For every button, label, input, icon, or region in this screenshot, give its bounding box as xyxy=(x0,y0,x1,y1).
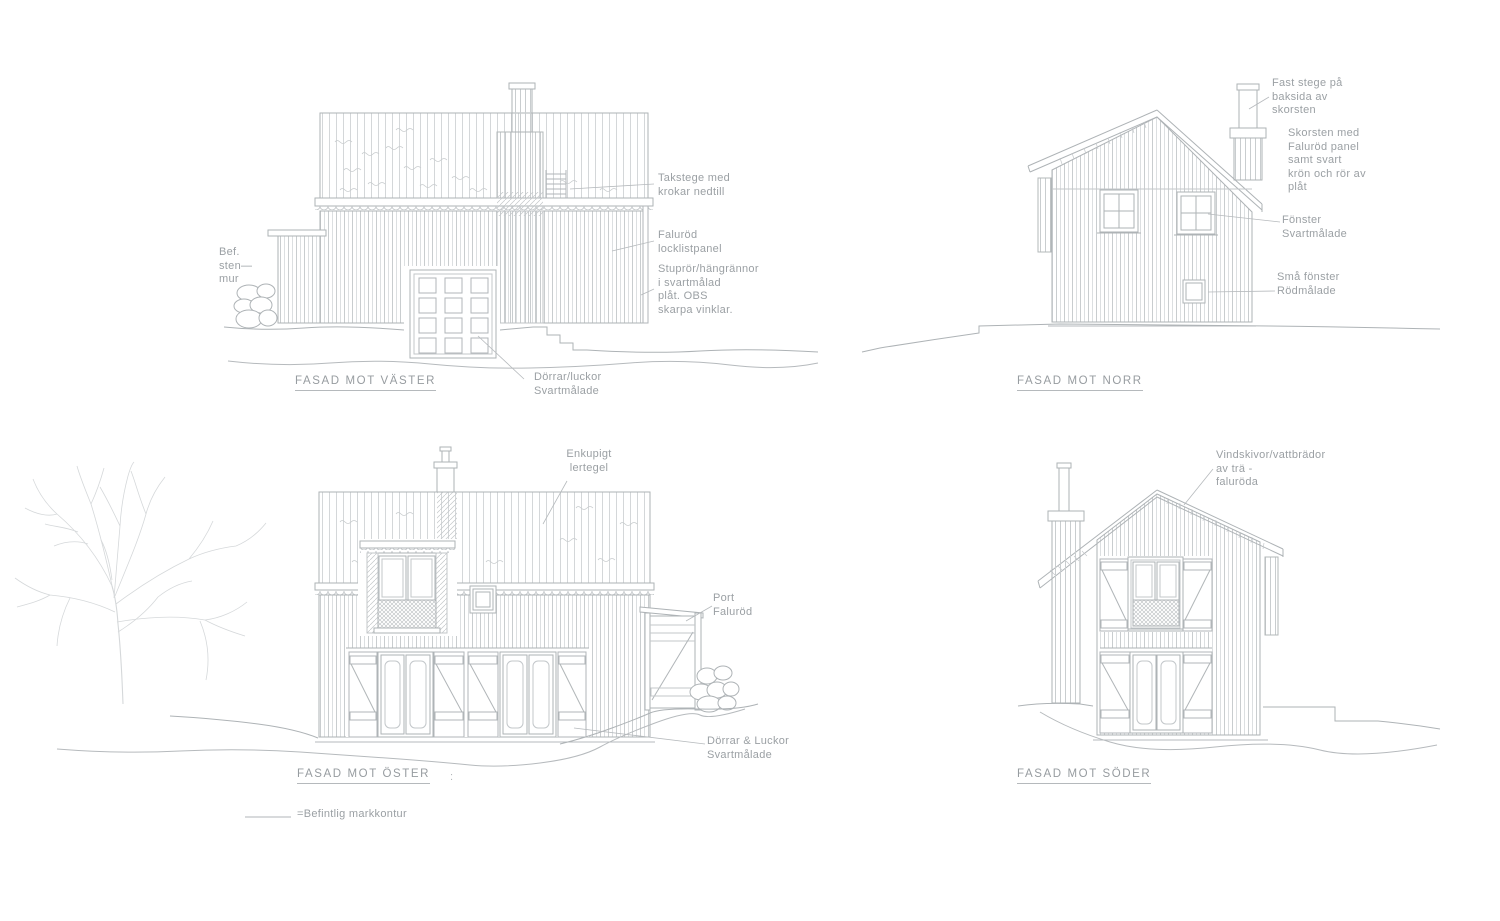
vaster-chimney-breast-wall xyxy=(497,211,543,323)
norr-drawing xyxy=(862,84,1440,352)
annotation-bef-stenmur: Bef. sten— mur xyxy=(219,246,252,287)
elevation-sheet: Bef. sten— mur Takstege med krokar nedti… xyxy=(0,0,1500,921)
annotation-dorrar-oster: Dörrar & Luckor Svartmålade xyxy=(707,735,789,762)
annotation-fast-stege: Fast stege på baksida av skorsten xyxy=(1272,77,1343,118)
norr-chimney-top-cap xyxy=(1237,84,1259,90)
soder-side-strip xyxy=(1265,557,1278,635)
soder-door xyxy=(1130,652,1183,733)
annotation-takstege: Takstege med krokar nedtill xyxy=(658,172,730,199)
bay-window xyxy=(358,539,457,636)
annotation-port: Port Faluröd xyxy=(713,592,752,619)
tree xyxy=(15,462,266,704)
title-fasad-mot-norr: FASAD MOT NORR xyxy=(1017,375,1143,391)
annotation-dorrar-vaster: Dörrar/luckor Svartmålade xyxy=(534,371,601,398)
annotation-skorsten: Skorsten med Faluröd panel samt svart kr… xyxy=(1288,127,1366,195)
vaster-chimney-breast-roof xyxy=(497,132,543,198)
norr-chimney-pipe xyxy=(1239,90,1257,128)
oster-small-window xyxy=(470,586,496,613)
soder-leader xyxy=(1184,469,1213,505)
vaster-extension-roof xyxy=(268,230,326,236)
soder-chimney-cap xyxy=(1048,511,1084,521)
norr-window-left xyxy=(1097,190,1141,233)
norr-small-window xyxy=(1183,280,1205,303)
vaster-chimney-stack xyxy=(512,89,532,132)
annotation-stupror: Stuprör/hängrännor i svartmålad plåt. OB… xyxy=(658,263,759,317)
norr-side-strip xyxy=(1038,178,1051,252)
soder-chimney-top-cap xyxy=(1057,463,1071,468)
soder-balcony-door xyxy=(1128,557,1183,631)
soder-drawing xyxy=(1018,463,1440,754)
norr-wall xyxy=(1052,117,1252,322)
oster-chimney-stack xyxy=(437,468,454,492)
norr-chimney-cap xyxy=(1230,128,1266,138)
norr-ground xyxy=(862,324,1440,352)
oster-chimney-cap xyxy=(434,462,457,468)
oster-drawing xyxy=(15,447,758,817)
downpipe xyxy=(643,206,648,323)
annotation-enkupigt-lertegel: Enkupigt lertegel xyxy=(558,448,620,475)
stone-wall xyxy=(234,284,277,328)
title-fasad-mot-oster: FASAD MOT ÖSTER xyxy=(297,768,430,784)
oster-chimney-pipe xyxy=(442,451,449,462)
norr-chimney-body xyxy=(1234,138,1262,180)
legend-label: =Befintlig markkontur xyxy=(297,808,407,822)
annotation-sma-fonster: Små fönster Rödmålade xyxy=(1277,271,1340,298)
annotation-locklistpanel: Faluröd locklistpanel xyxy=(658,229,722,256)
existing-contour xyxy=(228,361,818,368)
oster-stones xyxy=(690,666,739,712)
title-oster-suffix: : xyxy=(450,771,453,783)
norr-window-right xyxy=(1174,192,1218,235)
vaster-door-frame xyxy=(410,270,496,358)
oster-chimney-pipe-cap xyxy=(440,447,451,451)
title-fasad-mot-soder: FASAD MOT SÖDER xyxy=(1017,768,1151,784)
title-fasad-mot-vaster: FASAD MOT VÄSTER xyxy=(295,375,436,391)
soder-chimney-body xyxy=(1052,521,1080,703)
annotation-fonster: Fönster Svartmålade xyxy=(1282,214,1347,241)
vaster-chimney-cap xyxy=(509,83,535,89)
vaster-extension-wall xyxy=(278,236,320,323)
vaster-eave xyxy=(315,198,653,206)
soder-chimney-pipe xyxy=(1059,468,1069,511)
vaster-ground xyxy=(224,327,818,352)
annotation-vindskivor: Vindskivor/vattbrädor av trä - faluröda xyxy=(1216,449,1325,490)
vaster-drawing xyxy=(224,83,818,379)
